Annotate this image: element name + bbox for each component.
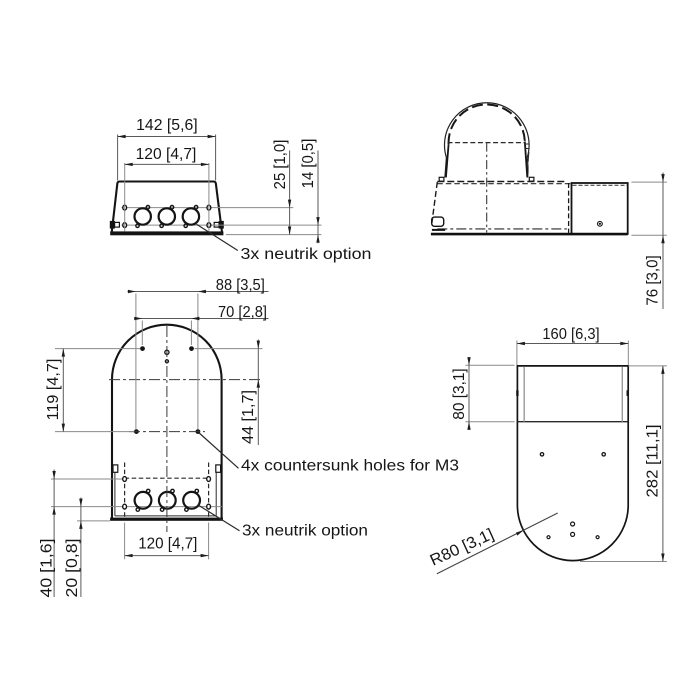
svg-text:20 [0,8]: 20 [0,8] <box>64 539 81 598</box>
svg-text:160 [6,3]: 160 [6,3] <box>542 326 599 343</box>
svg-text:119 [4,7]: 119 [4,7] <box>45 359 62 421</box>
svg-text:120 [4,7]: 120 [4,7] <box>136 146 197 163</box>
svg-text:44 [1,7]: 44 [1,7] <box>240 390 257 444</box>
svg-text:70 [2,8]: 70 [2,8] <box>218 304 267 321</box>
svg-text:40 [1,6]: 40 [1,6] <box>39 539 56 598</box>
svg-text:25 [1,0]: 25 [1,0] <box>272 140 289 190</box>
svg-text:3x neutrik option: 3x neutrik option <box>242 523 368 540</box>
svg-text:282 [11,1]: 282 [11,1] <box>645 425 662 498</box>
svg-text:120 [4,7]: 120 [4,7] <box>138 535 197 552</box>
svg-text:76 [3,0]: 76 [3,0] <box>645 255 662 305</box>
svg-text:88 [3,5]: 88 [3,5] <box>216 277 265 294</box>
svg-text:4x countersunk holes for M3: 4x countersunk holes for M3 <box>241 457 459 474</box>
svg-text:142 [5,6]: 142 [5,6] <box>136 117 198 134</box>
svg-text:3x neutrik option: 3x neutrik option <box>241 246 372 263</box>
svg-text:14 [0,5]: 14 [0,5] <box>300 139 317 189</box>
svg-text:80 [3,1]: 80 [3,1] <box>451 368 468 419</box>
